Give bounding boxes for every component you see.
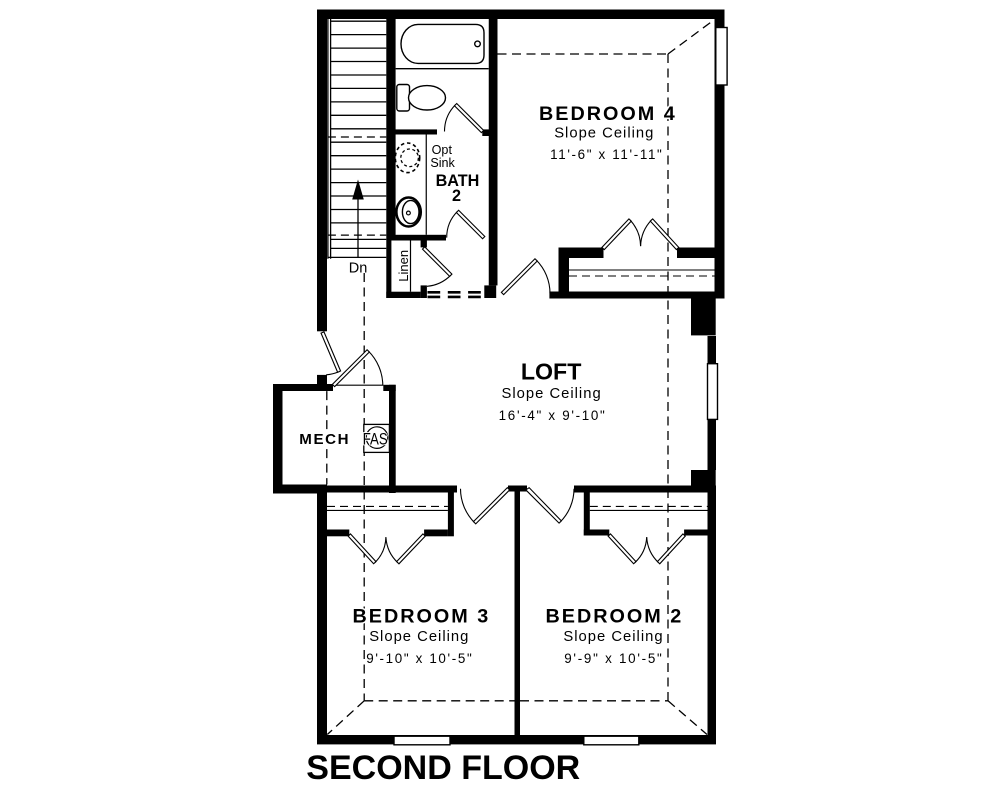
svg-text:Slope Ceiling: Slope Ceiling bbox=[501, 386, 601, 402]
svg-text:Slope Ceiling: Slope Ceiling bbox=[369, 629, 469, 645]
svg-text:Sink: Sink bbox=[430, 156, 455, 170]
svg-text:Opt: Opt bbox=[432, 143, 453, 157]
svg-text:LOFT: LOFT bbox=[521, 359, 582, 385]
svg-text:Slope Ceiling: Slope Ceiling bbox=[563, 629, 663, 645]
svg-text:16'-4" x 9'-10": 16'-4" x 9'-10" bbox=[499, 408, 607, 423]
svg-text:11'-6" x 11'-11": 11'-6" x 11'-11" bbox=[550, 147, 663, 162]
svg-text:FAS: FAS bbox=[363, 430, 388, 448]
svg-text:BEDROOM 3: BEDROOM 3 bbox=[352, 605, 490, 627]
svg-text:Slope Ceiling: Slope Ceiling bbox=[554, 125, 654, 141]
svg-text:9'-9" x 10'-5": 9'-9" x 10'-5" bbox=[564, 651, 663, 666]
svg-text:MECH: MECH bbox=[299, 431, 350, 448]
svg-text:Linen: Linen bbox=[396, 250, 411, 282]
svg-text:BEDROOM 4: BEDROOM 4 bbox=[539, 103, 677, 125]
svg-text:Dn: Dn bbox=[349, 260, 368, 276]
svg-text:BEDROOM 2: BEDROOM 2 bbox=[545, 606, 683, 628]
svg-text:2: 2 bbox=[452, 187, 461, 205]
svg-text:SECOND FLOOR: SECOND FLOOR bbox=[306, 749, 580, 787]
svg-text:9'-10" x 10'-5": 9'-10" x 10'-5" bbox=[366, 651, 473, 666]
